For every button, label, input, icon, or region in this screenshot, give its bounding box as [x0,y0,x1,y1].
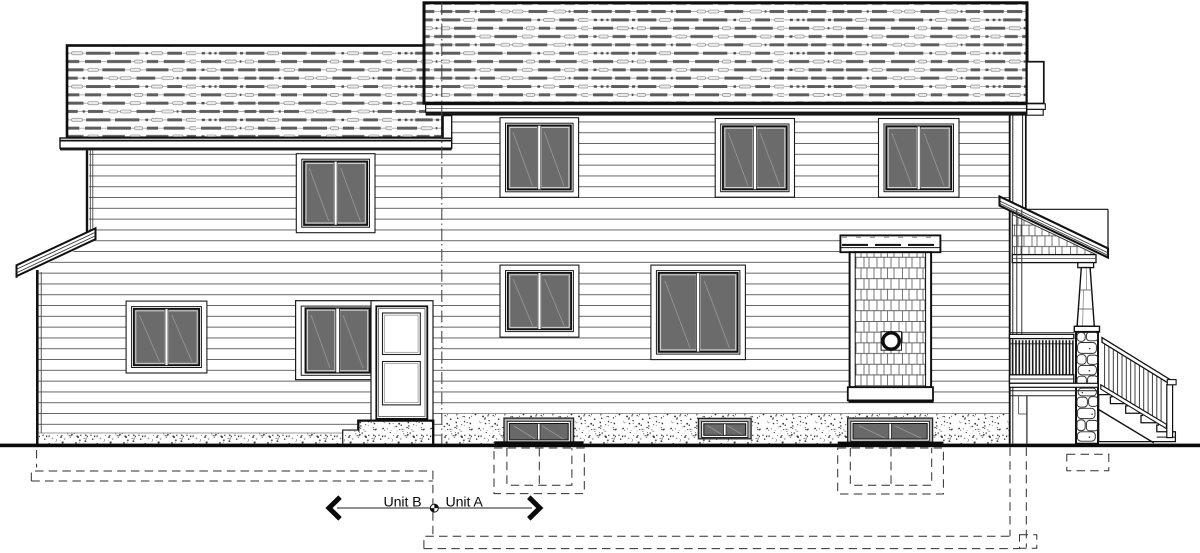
svg-text:Unit B: Unit B [383,495,421,511]
svg-text:Unit A: Unit A [446,495,484,511]
